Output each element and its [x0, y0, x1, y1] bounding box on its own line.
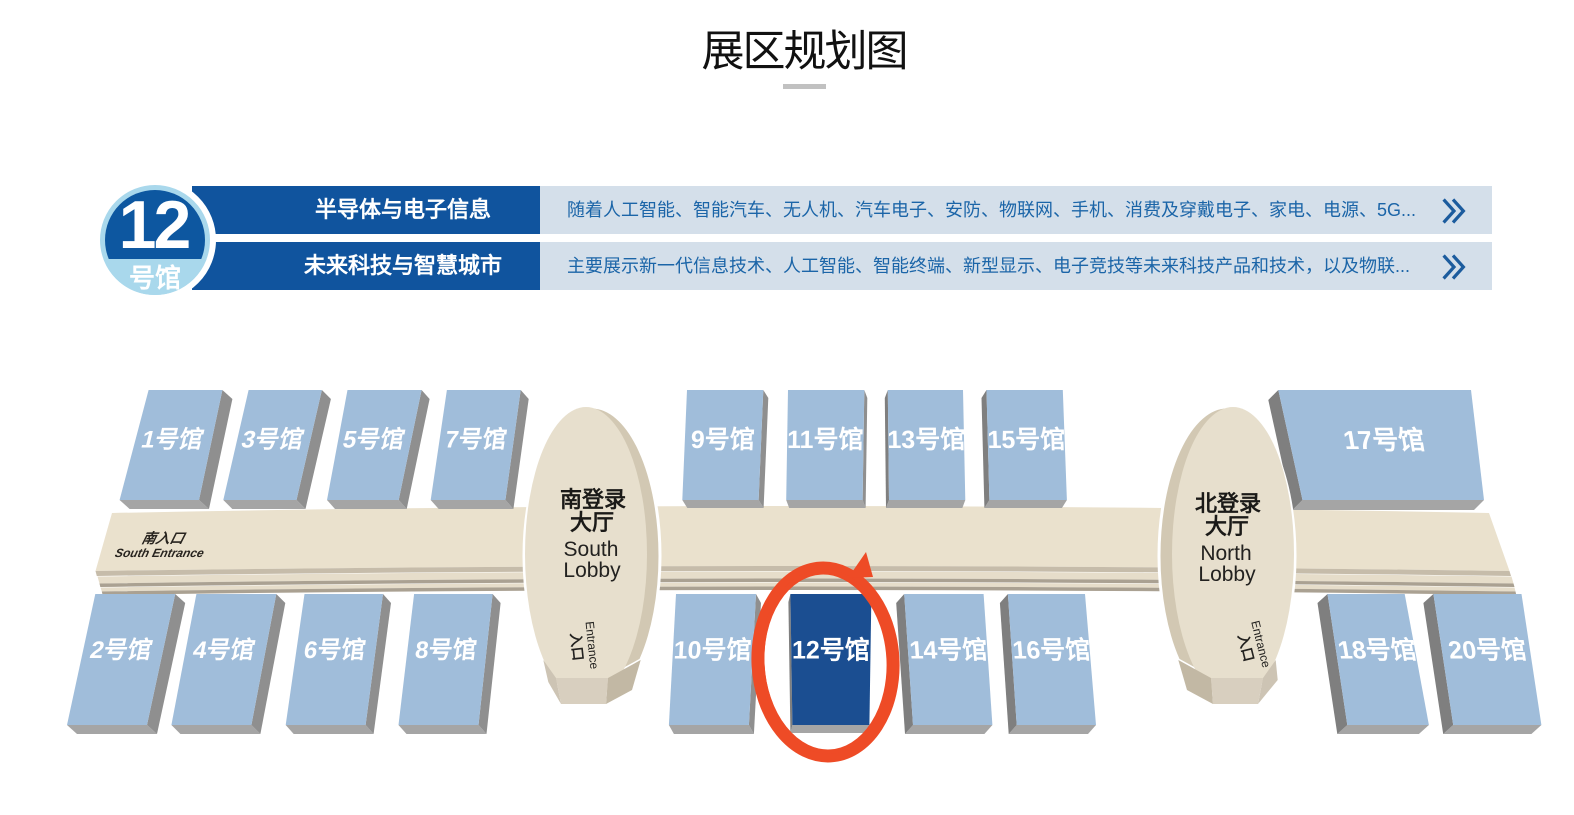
svg-text:大厅: 大厅: [1205, 514, 1249, 539]
svg-text:6号馆: 6号馆: [302, 636, 367, 664]
svg-text:South Entrance: South Entrance: [113, 546, 205, 560]
svg-text:11号馆: 11号馆: [787, 425, 864, 454]
svg-text:10号馆: 10号馆: [673, 636, 752, 665]
svg-text:北登录: 北登录: [1195, 491, 1261, 516]
svg-text:18号馆: 18号馆: [1336, 636, 1419, 665]
svg-text:7号馆: 7号馆: [443, 426, 508, 454]
svg-text:南入口: 南入口: [140, 530, 188, 547]
svg-text:Lobby: Lobby: [563, 559, 621, 582]
svg-text:13号馆: 13号馆: [887, 425, 965, 454]
svg-text:大厅: 大厅: [570, 510, 614, 535]
svg-text:9号馆: 9号馆: [690, 425, 755, 454]
svg-text:16号馆: 16号馆: [1011, 636, 1091, 665]
svg-text:入口: 入口: [568, 632, 587, 662]
svg-text:南登录: 南登录: [560, 487, 626, 512]
svg-text:2号馆: 2号馆: [88, 636, 155, 664]
svg-text:Lobby: Lobby: [1198, 563, 1256, 586]
svg-text:North: North: [1200, 542, 1251, 565]
svg-text:12号馆: 12号馆: [792, 636, 870, 665]
svg-text:15号馆: 15号馆: [987, 425, 1066, 454]
svg-text:3号馆: 3号馆: [239, 426, 307, 454]
svg-text:8号馆: 8号馆: [414, 636, 478, 664]
svg-text:20号馆: 20号馆: [1446, 636, 1528, 665]
svg-text:1号馆: 1号馆: [139, 426, 207, 454]
svg-text:14号馆: 14号馆: [908, 636, 988, 665]
svg-text:South: South: [564, 538, 619, 561]
svg-text:4号馆: 4号馆: [191, 636, 258, 664]
svg-text:17号馆: 17号馆: [1341, 425, 1427, 455]
svg-text:5号馆: 5号馆: [340, 426, 407, 454]
